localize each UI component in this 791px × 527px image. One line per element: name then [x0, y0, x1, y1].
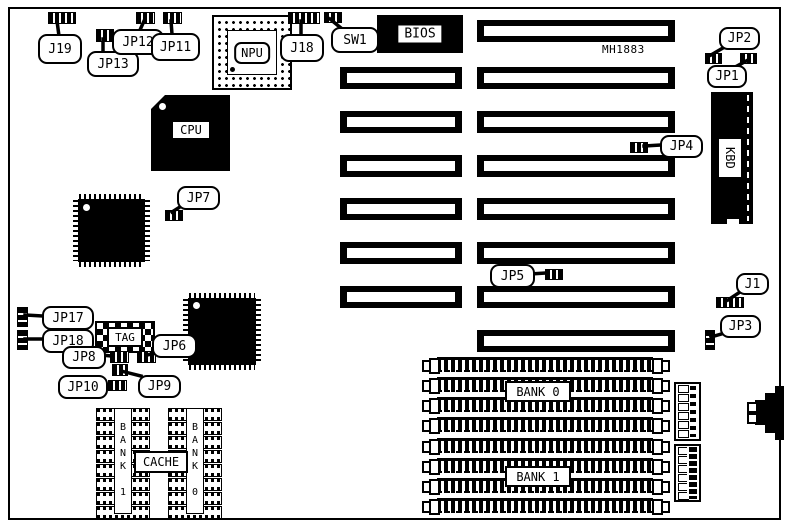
cpu-pin1-dot	[159, 103, 166, 110]
qfp-chip-2	[183, 293, 261, 370]
jumper-block-jp12	[136, 12, 155, 24]
cpu-label: CPU	[173, 122, 209, 138]
isa-slot	[477, 155, 675, 177]
jumper-label-jp9: JP9	[138, 375, 181, 398]
isa-slot-ext	[340, 286, 462, 308]
tag-label: TAG	[107, 327, 143, 347]
power-connector	[765, 393, 776, 433]
motherboard-diagram: MH1883 NPU CPU BIOS KBD	[0, 0, 791, 527]
power-connector-tab	[747, 402, 758, 413]
jumper-label-jp4: JP4	[660, 135, 703, 158]
keyboard-connector: KBD	[711, 92, 753, 224]
pin-header-connector-1	[674, 382, 701, 441]
power-connector-tab	[747, 413, 758, 424]
isa-slot-ext	[340, 67, 462, 89]
npu-pin1-dot	[230, 67, 235, 72]
jumper-block-sw1	[324, 12, 342, 23]
isa-slot-ext	[340, 155, 462, 177]
jumper-block-jp17	[17, 307, 28, 327]
jumper-block-jp4	[630, 142, 648, 153]
qfp-pin1-dot	[193, 302, 200, 309]
bios-label: BIOS	[398, 26, 441, 43]
jumper-label-jp7: JP7	[177, 186, 220, 210]
jumper-label-j1: J1	[736, 273, 769, 295]
isa-slot-ext	[340, 198, 462, 220]
cache-bank1-strip: BANK 1	[114, 408, 132, 514]
qfp-pins-right	[145, 200, 150, 261]
jumper-label-jp10: JP10	[58, 375, 108, 399]
bank1-label: BANK 1	[505, 466, 571, 487]
isa-slot-ext	[340, 242, 462, 264]
bios-chip: BIOS	[377, 15, 463, 53]
npu-label: NPU	[234, 42, 270, 64]
jumper-block-j18	[288, 12, 320, 24]
jumper-label-jp5: JP5	[490, 264, 535, 288]
jumper-label-jp6: JP6	[152, 334, 197, 358]
simm-socket	[422, 417, 670, 433]
isa-slot-ext	[340, 111, 462, 133]
qfp-chip-1	[73, 194, 150, 267]
qfp-pin1-dot	[83, 204, 90, 211]
jumper-block-jp10	[108, 380, 127, 391]
pin-header-pins	[687, 447, 697, 499]
jumper-label-j19: J19	[38, 34, 82, 64]
jumper-block-jp5	[545, 269, 563, 280]
jumper-label-jp11: JP11	[151, 33, 200, 61]
jumper-block-jp3	[705, 330, 715, 350]
jumper-block-jp2	[705, 53, 722, 64]
jumper-block-jp8	[110, 351, 129, 363]
jumper-block-jp1	[740, 53, 757, 64]
simm-socket	[422, 498, 670, 514]
jumper-block-jp18	[17, 330, 28, 350]
kbd-label: KBD	[718, 138, 742, 178]
kbd-dashed-line	[747, 95, 749, 221]
jumper-block-j1	[716, 297, 744, 308]
jumper-block-jp11	[163, 12, 182, 24]
isa-slot	[477, 67, 675, 89]
jumper-label-j18: J18	[280, 34, 324, 62]
isa-slot	[477, 20, 675, 42]
isa-slot	[477, 111, 675, 133]
jumper-label-jp17: JP17	[42, 306, 94, 330]
isa-slot	[477, 330, 675, 352]
jumper-label-jp1: JP1	[707, 65, 747, 88]
cache-bank0-strip: BANK 0	[186, 408, 204, 514]
board-model-text: MH1883	[602, 43, 645, 56]
jumper-label-jp8: JP8	[62, 346, 106, 369]
cpu-chip: CPU	[151, 95, 230, 171]
isa-slot	[477, 198, 675, 220]
qfp-pins-bottom	[79, 262, 144, 267]
jumper-block-j19	[48, 12, 76, 24]
pin-header-connector-2	[674, 444, 701, 502]
isa-slot	[477, 286, 675, 308]
power-connector	[775, 386, 784, 440]
kbd-notch	[727, 219, 739, 224]
simm-socket	[422, 438, 670, 454]
jumper-label-jp2: JP2	[719, 27, 760, 50]
jumper-block-jp9	[112, 364, 128, 376]
jumper-label-sw1: SW1	[331, 27, 379, 53]
isa-slot	[477, 242, 675, 264]
tag-ram-chip: TAG	[95, 321, 155, 353]
jumper-block-jp7	[165, 210, 183, 221]
simm-socket	[422, 357, 670, 373]
pin-header-pins	[690, 386, 696, 437]
jumper-label-jp3: JP3	[720, 315, 761, 338]
qfp-pins-right	[256, 299, 261, 364]
bank0-label: BANK 0	[505, 381, 571, 402]
cache-label: CACHE	[134, 451, 188, 473]
qfp-pins-bottom	[189, 365, 255, 370]
